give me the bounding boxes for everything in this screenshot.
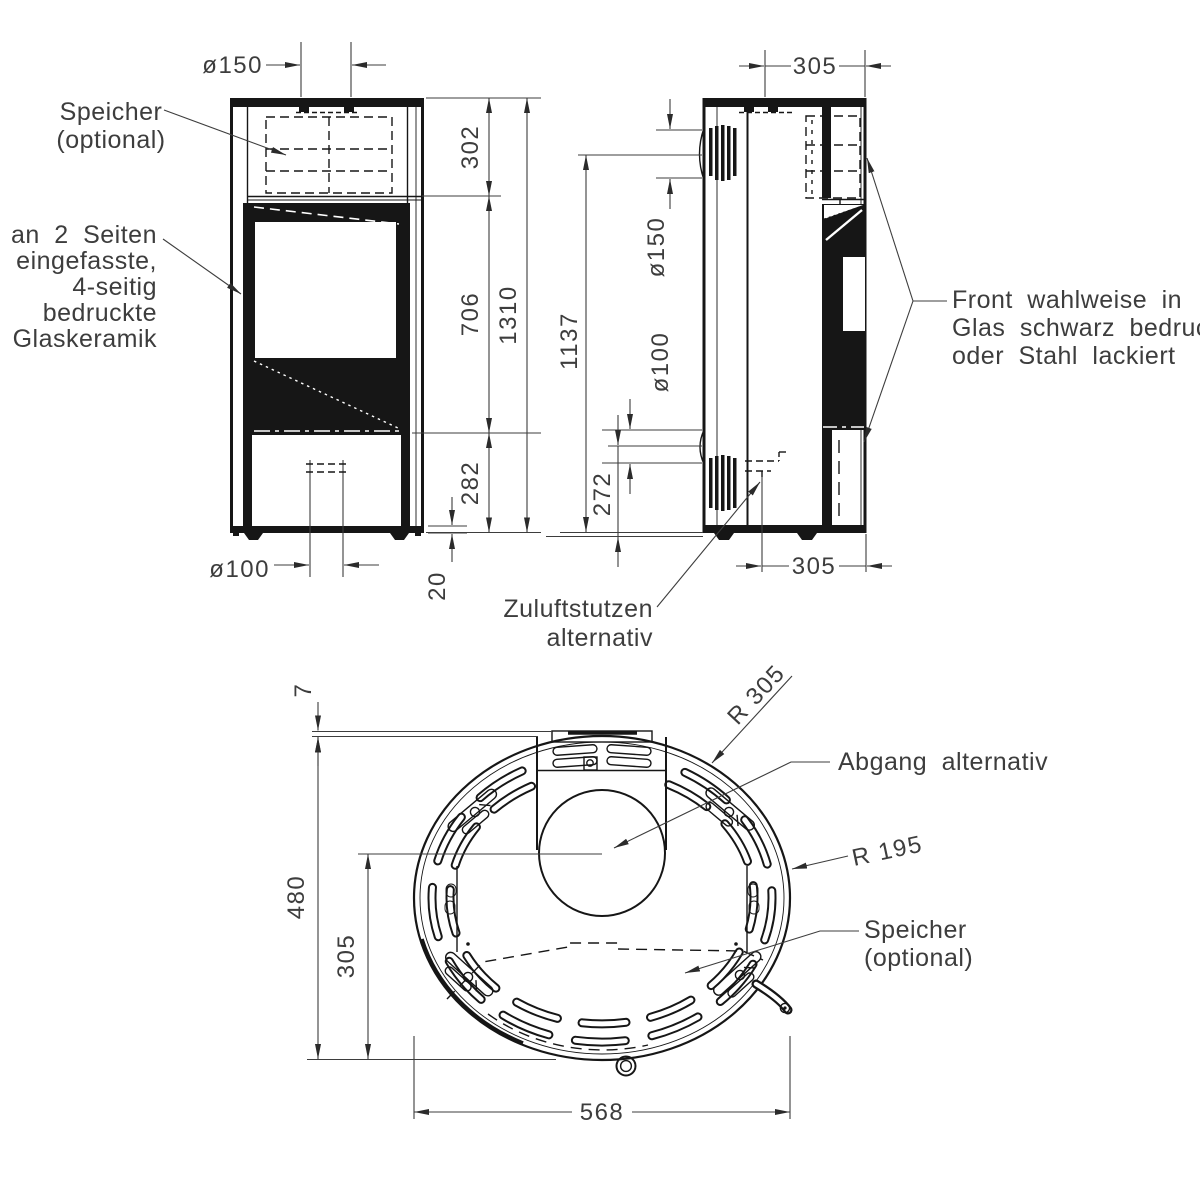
dim-side-depth-top: 305 bbox=[793, 53, 838, 80]
dim-top-flue-center-offset: 305 bbox=[333, 934, 360, 979]
dim-side-inlet-diameter: ø100 bbox=[647, 332, 674, 393]
leader-zuluft bbox=[657, 482, 760, 607]
dim-top-depth-total: 480 bbox=[283, 875, 310, 920]
dim-front-glass-height: 706 bbox=[457, 292, 484, 337]
dim-front-total-height: 1310 bbox=[495, 285, 522, 344]
side-speicher-dashed-box bbox=[806, 116, 860, 198]
side-view: 305 ø150 1137 ø100 272 bbox=[503, 50, 1200, 652]
label-zuluft-line1: Zuluftstutzen bbox=[503, 595, 653, 623]
top-inlet-pipe bbox=[756, 984, 790, 1013]
dim-top-radius-side: R 195 bbox=[850, 831, 926, 872]
technical-drawing-page: ø150 302 706 282 1310 20 ø100 Speicher bbox=[0, 0, 1200, 1179]
front-glass-panel bbox=[243, 203, 410, 526]
label-glass-line1: an 2 Seiten bbox=[11, 221, 157, 249]
stove-dimension-drawing: ø150 302 706 282 1310 20 ø100 Speicher bbox=[0, 0, 1200, 1179]
label-glass-line2: eingefasste, bbox=[16, 247, 157, 275]
dim-side-flue-center-height: 1137 bbox=[556, 312, 583, 370]
front-view-body bbox=[230, 98, 424, 577]
dim-front-base-height: 282 bbox=[457, 461, 484, 506]
dim-side-depth-bottom: 305 bbox=[792, 553, 837, 580]
dim-front-plinth-height: 20 bbox=[424, 571, 451, 601]
dim-top-width: 568 bbox=[580, 1099, 625, 1126]
label-glass-line5: Glaskeramik bbox=[13, 325, 157, 353]
label-glass-line3: 4-seitig bbox=[72, 273, 157, 301]
label-front-panel-line1: Front wahlweise in bbox=[952, 286, 1182, 314]
dim-front-storage-height: 302 bbox=[457, 125, 484, 170]
front-foot-left bbox=[244, 533, 263, 540]
top-dimensions: 7 480 305 568 R 305 R 195 bbox=[283, 660, 925, 1126]
dim-front-flue-diameter: ø150 bbox=[202, 52, 263, 79]
front-view: ø150 302 706 282 1310 20 ø100 Speicher bbox=[11, 42, 541, 601]
dim-side-inlet-center-height: 272 bbox=[589, 472, 616, 517]
dim-front-inlet-diameter: ø100 bbox=[209, 556, 270, 583]
label-zuluft-line2: alternativ bbox=[547, 624, 653, 652]
label-front-panel-line2: Glas schwarz bedruckt bbox=[952, 314, 1200, 342]
dim-top-radius-back: R 305 bbox=[722, 660, 791, 731]
top-view-body bbox=[414, 731, 790, 1076]
dim-top-plate-offset: 7 bbox=[290, 683, 317, 698]
label-glass-line4: bedruckte bbox=[43, 299, 157, 327]
leader-glass bbox=[163, 239, 241, 294]
label-speicher-line2: (optional) bbox=[56, 126, 165, 154]
side-glass-front bbox=[822, 204, 865, 526]
top-flue-outlet-circle bbox=[539, 790, 665, 916]
label-speicher-line1: Speicher bbox=[60, 98, 163, 126]
top-view: 7 480 305 568 R 305 R 195 Abgang alterna… bbox=[283, 660, 1048, 1126]
side-zuluft-stub bbox=[745, 452, 786, 477]
side-view-body bbox=[700, 98, 867, 540]
label-front-panel-line3: oder Stahl lackiert bbox=[952, 342, 1176, 370]
leader-abgang bbox=[614, 762, 830, 848]
dim-side-flue-diameter: ø150 bbox=[643, 217, 670, 278]
front-foot-right bbox=[390, 533, 409, 540]
front-inlet-pipe bbox=[306, 460, 347, 577]
label-abgang: Abgang alternativ bbox=[838, 748, 1048, 776]
label-top-speicher-line2: (optional) bbox=[864, 944, 973, 972]
label-top-speicher-line1: Speicher bbox=[864, 916, 967, 944]
